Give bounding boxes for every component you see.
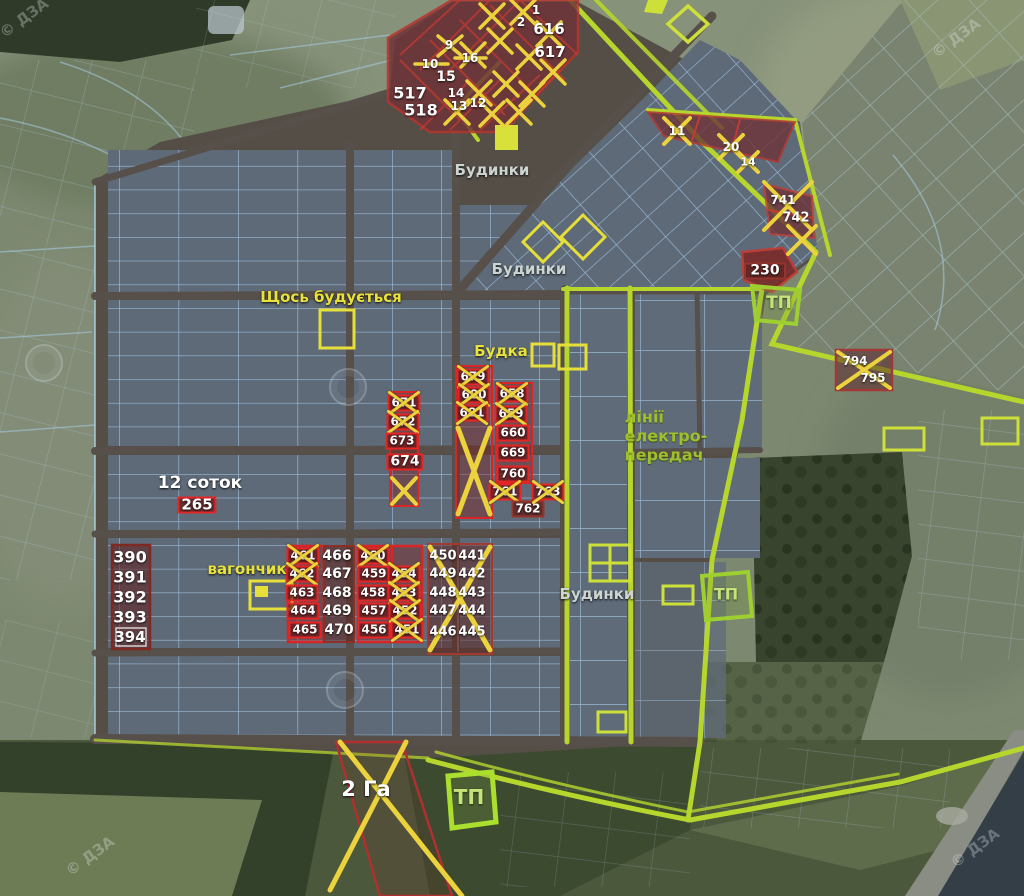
- plot-number-392: 392: [112, 588, 147, 607]
- plot-number-456: 456: [357, 622, 390, 639]
- plot-number-464: 464: [286, 603, 319, 620]
- plot-number-453: 453: [387, 585, 420, 602]
- watermark-ring: [329, 368, 367, 406]
- plot-number-394: 394: [113, 628, 146, 646]
- plot-number-443: 443: [457, 586, 486, 601]
- plot-number-469: 469: [321, 603, 352, 619]
- plot-number-452: 452: [388, 603, 421, 620]
- plot-number-617: 617: [533, 43, 566, 61]
- map-label: Будка: [474, 342, 528, 360]
- plot-number-441: 441: [457, 549, 486, 564]
- plot-number-458: 458: [356, 585, 389, 602]
- map-label: лінії електро- передач: [625, 408, 708, 465]
- map-label: Будинки: [455, 161, 530, 179]
- map-label: 12 соток: [158, 473, 242, 493]
- plot-number-674: 674: [386, 454, 423, 471]
- map-label: Будинки: [560, 585, 635, 603]
- plot-number-794: 794: [841, 354, 868, 368]
- watermark-text: © ДЗА: [62, 832, 118, 879]
- plot-number-444: 444: [457, 604, 486, 619]
- plot-number-658: 658: [495, 386, 528, 403]
- plot-number-763: 763: [531, 484, 564, 501]
- plot-number-760: 760: [496, 466, 529, 483]
- plot-number-9: 9: [444, 38, 454, 52]
- plot-number-761: 761: [488, 484, 521, 501]
- plot-number-659: 659: [494, 406, 527, 423]
- plot-number-449: 449: [428, 567, 457, 582]
- plot-number-518: 518: [403, 101, 438, 120]
- plot-number-230: 230: [744, 263, 786, 280]
- plot-number-15: 15: [435, 69, 456, 85]
- map-label: 2 Га: [341, 777, 390, 801]
- watermark-text: © ДЗА: [0, 0, 52, 42]
- plot-number-762: 762: [511, 501, 544, 518]
- plot-number-673: 673: [385, 433, 418, 450]
- plot-number-11: 11: [668, 124, 687, 138]
- plot-number-669: 669: [496, 445, 529, 462]
- plot-number-451: 451: [390, 622, 423, 639]
- plot-number-660: 660: [496, 425, 529, 442]
- plot-number-463: 463: [285, 585, 318, 602]
- annotation-layer: 1261661791016151413125175181120147417422…: [0, 0, 1024, 896]
- plot-number-445: 445: [457, 625, 486, 640]
- plot-number-672: 672: [386, 414, 419, 431]
- plot-number-447: 447: [428, 604, 457, 619]
- map-label: ТП: [454, 785, 484, 809]
- plot-number-679: 679: [456, 369, 489, 386]
- plot-number-391: 391: [112, 568, 147, 587]
- watermark-text: © ДЗА: [947, 824, 1003, 871]
- plot-number-13: 13: [450, 99, 469, 113]
- map-label: Щось будується: [260, 288, 402, 306]
- watermark-ring: [326, 671, 364, 709]
- plot-number-616: 616: [532, 20, 565, 38]
- map-label: Будинки: [492, 260, 567, 278]
- map-label: ТП: [714, 585, 738, 604]
- plot-number-460: 460: [356, 548, 389, 565]
- plot-number-1: 1: [531, 3, 541, 17]
- plot-number-468: 468: [321, 585, 352, 601]
- plot-number-459: 459: [357, 566, 390, 583]
- plot-number-265: 265: [177, 497, 216, 514]
- plot-number-457: 457: [357, 603, 390, 620]
- plot-number-2: 2: [516, 15, 526, 29]
- plot-number-671: 671: [387, 395, 420, 412]
- map-label: ТП: [766, 293, 792, 313]
- plot-number-742: 742: [781, 211, 810, 226]
- plot-number-681: 681: [455, 405, 488, 422]
- plot-number-20: 20: [722, 140, 741, 154]
- plot-number-741: 741: [769, 193, 796, 207]
- plot-number-465: 465: [288, 622, 321, 639]
- satellite-map: 1261661791016151413125175181120147417422…: [0, 0, 1024, 896]
- watermark-ring: [25, 344, 63, 382]
- plot-number-442: 442: [457, 567, 486, 582]
- plot-number-446: 446: [428, 625, 457, 640]
- plot-number-467: 467: [321, 566, 352, 582]
- plot-number-795: 795: [859, 371, 886, 385]
- map-label: вагончик: [207, 560, 286, 578]
- watermark-text: © ДЗА: [928, 14, 984, 61]
- plot-number-14: 14: [739, 156, 756, 169]
- plot-number-12: 12: [469, 96, 488, 110]
- plot-number-390: 390: [112, 548, 147, 567]
- plot-number-462: 462: [285, 566, 318, 583]
- plot-number-466: 466: [321, 548, 352, 564]
- plot-number-14: 14: [447, 86, 466, 100]
- plot-number-16: 16: [461, 51, 480, 65]
- plot-number-450: 450: [428, 549, 457, 564]
- plot-number-454: 454: [387, 566, 420, 583]
- plot-number-470: 470: [323, 622, 354, 638]
- plot-number-393: 393: [112, 608, 147, 627]
- plot-number-448: 448: [428, 586, 457, 601]
